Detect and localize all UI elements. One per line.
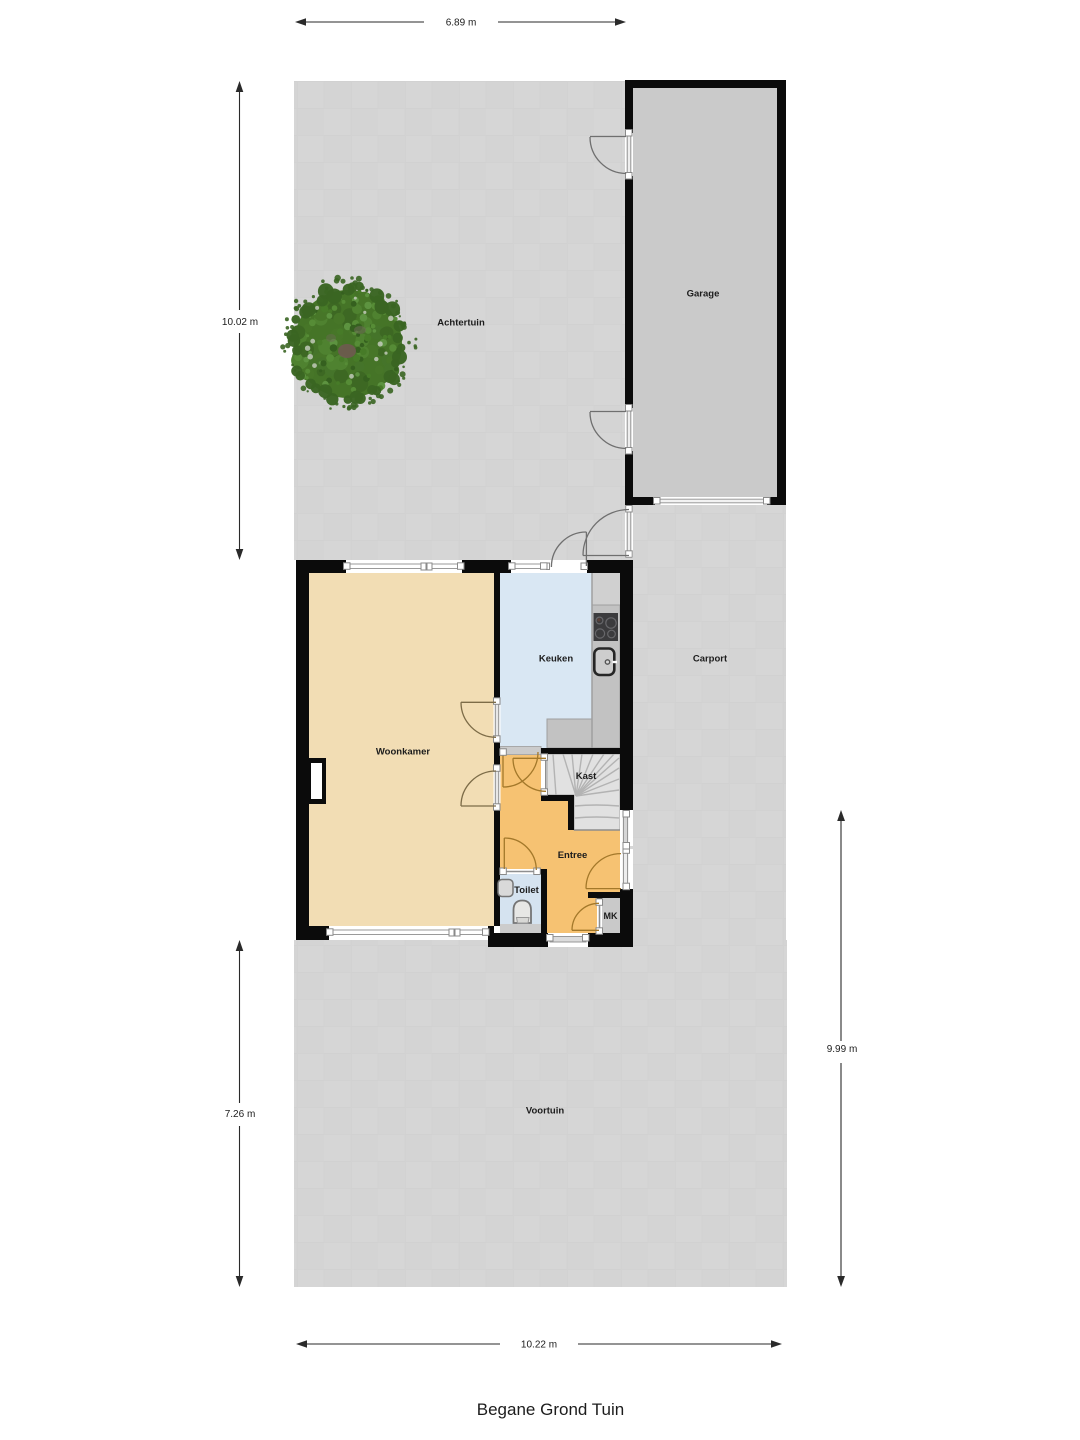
svg-text:MK: MK xyxy=(604,911,618,921)
svg-text:6.89 m: 6.89 m xyxy=(446,18,477,29)
svg-text:Carport: Carport xyxy=(693,654,728,665)
svg-text:Achtertuin: Achtertuin xyxy=(437,318,485,329)
svg-text:Begane Grond Tuin: Begane Grond Tuin xyxy=(477,1400,624,1419)
svg-text:Garage: Garage xyxy=(687,289,720,300)
svg-text:Entree: Entree xyxy=(558,850,588,861)
svg-text:Woonkamer: Woonkamer xyxy=(376,747,431,758)
svg-text:Kast: Kast xyxy=(576,771,597,782)
svg-text:10.02 m: 10.02 m xyxy=(222,317,258,328)
svg-text:Keuken: Keuken xyxy=(539,654,574,665)
svg-text:Voortuin: Voortuin xyxy=(526,1106,565,1117)
svg-text:10.22 m: 10.22 m xyxy=(521,1340,557,1351)
svg-text:9.99 m: 9.99 m xyxy=(827,1044,858,1055)
svg-text:7.26 m: 7.26 m xyxy=(225,1109,256,1120)
svg-text:Toilet: Toilet xyxy=(514,885,539,896)
